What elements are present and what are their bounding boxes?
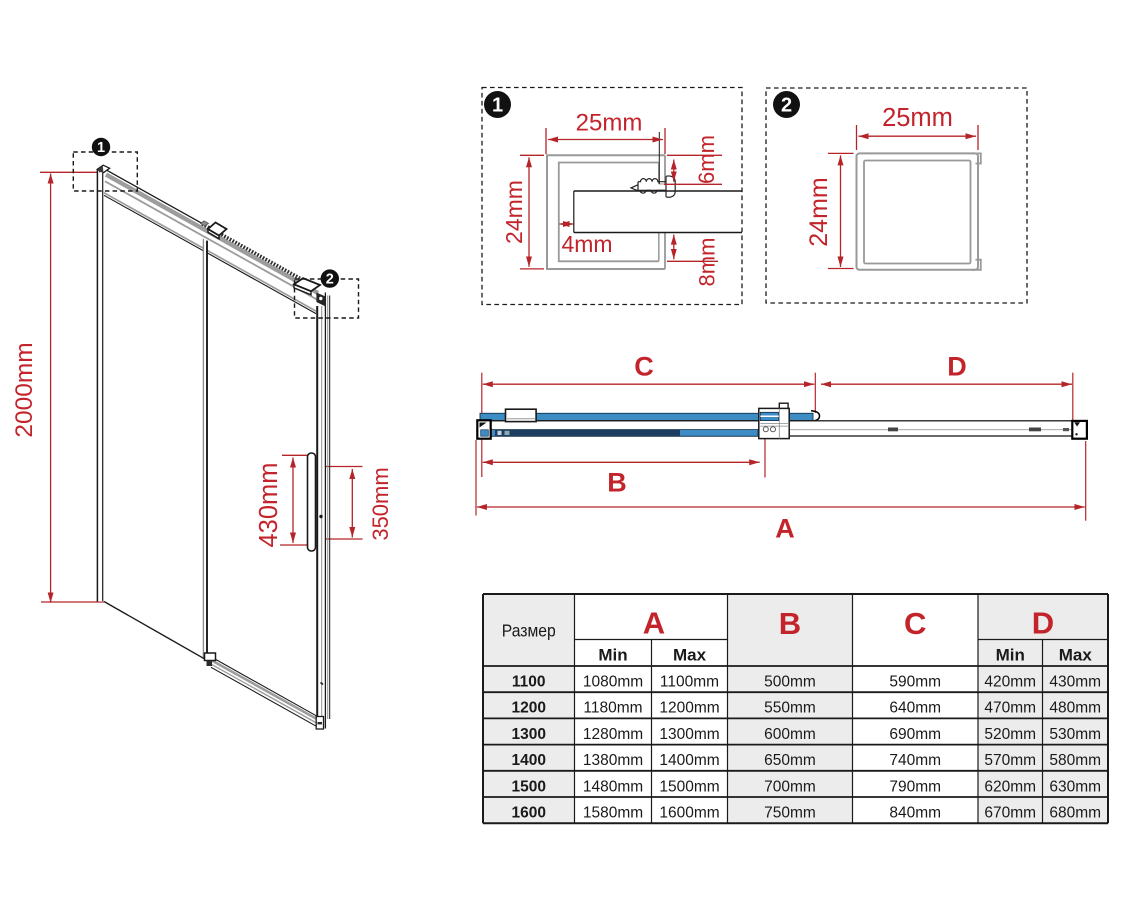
- svg-text:1380mm: 1380mm: [583, 752, 643, 769]
- svg-text:1480mm: 1480mm: [583, 778, 643, 795]
- svg-text:700mm: 700mm: [764, 778, 816, 795]
- svg-text:Max: Max: [1059, 646, 1093, 665]
- svg-text:1580mm: 1580mm: [583, 805, 643, 822]
- svg-text:1280mm: 1280mm: [583, 726, 643, 743]
- svg-text:1180mm: 1180mm: [583, 700, 642, 717]
- svg-text:750mm: 750mm: [764, 805, 816, 822]
- svg-text:1500mm: 1500mm: [659, 778, 719, 795]
- svg-text:590mm: 590mm: [889, 674, 941, 691]
- svg-text:790mm: 790mm: [889, 778, 941, 795]
- svg-text:2: 2: [326, 272, 334, 288]
- svg-text:840mm: 840mm: [889, 805, 941, 822]
- svg-text:1400mm: 1400mm: [659, 752, 719, 769]
- svg-text:1: 1: [492, 95, 503, 117]
- svg-text:A: A: [775, 514, 795, 544]
- svg-text:530mm: 530mm: [1049, 726, 1101, 743]
- svg-text:C: C: [634, 352, 654, 382]
- svg-text:8mm: 8mm: [695, 238, 720, 287]
- svg-text:570mm: 570mm: [984, 752, 1036, 769]
- svg-text:1600mm: 1600mm: [659, 805, 719, 822]
- svg-text:690mm: 690mm: [889, 726, 941, 743]
- svg-text:1300: 1300: [512, 726, 546, 743]
- svg-text:C: C: [904, 606, 926, 641]
- svg-text:480mm: 480mm: [1049, 700, 1101, 717]
- svg-text:1: 1: [97, 140, 105, 156]
- svg-text:350mm: 350mm: [368, 467, 393, 540]
- svg-text:Min: Min: [598, 646, 627, 665]
- svg-text:550mm: 550mm: [764, 700, 816, 717]
- svg-text:A: A: [643, 606, 665, 641]
- svg-text:420mm: 420mm: [984, 674, 1036, 691]
- svg-text:25mm: 25mm: [576, 110, 643, 137]
- svg-text:B: B: [779, 606, 801, 641]
- svg-text:1100mm: 1100mm: [660, 674, 719, 691]
- svg-text:1500: 1500: [512, 778, 546, 795]
- svg-text:D: D: [1032, 606, 1054, 641]
- svg-text:4mm: 4mm: [561, 231, 612, 257]
- svg-text:430mm: 430mm: [255, 462, 283, 547]
- svg-text:1400: 1400: [512, 752, 546, 769]
- svg-text:1600: 1600: [512, 805, 546, 822]
- svg-text:2: 2: [781, 95, 792, 117]
- svg-text:580mm: 580mm: [1049, 752, 1101, 769]
- svg-text:Размер: Размер: [502, 621, 556, 641]
- svg-text:25mm: 25mm: [882, 104, 953, 132]
- svg-text:500mm: 500mm: [764, 674, 816, 691]
- svg-text:6mm: 6mm: [694, 135, 719, 184]
- svg-text:740mm: 740mm: [889, 752, 941, 769]
- svg-text:D: D: [947, 352, 967, 382]
- svg-text:Max: Max: [673, 646, 707, 665]
- svg-text:430mm: 430mm: [1049, 674, 1101, 691]
- svg-text:1200mm: 1200mm: [659, 700, 719, 717]
- svg-text:24mm: 24mm: [501, 180, 527, 244]
- svg-text:2000mm: 2000mm: [11, 342, 38, 437]
- svg-text:24mm: 24mm: [805, 177, 833, 246]
- svg-text:650mm: 650mm: [764, 752, 816, 769]
- svg-text:680mm: 680mm: [1049, 805, 1101, 822]
- svg-text:600mm: 600mm: [764, 726, 816, 743]
- svg-text:1080mm: 1080mm: [583, 674, 643, 691]
- svg-text:Min: Min: [996, 646, 1025, 665]
- svg-text:470mm: 470mm: [984, 700, 1036, 717]
- svg-text:1300mm: 1300mm: [659, 726, 719, 743]
- svg-text:630mm: 630mm: [1049, 778, 1101, 795]
- svg-text:670mm: 670mm: [984, 805, 1036, 822]
- svg-text:1100: 1100: [512, 674, 546, 691]
- svg-text:520mm: 520mm: [984, 726, 1036, 743]
- svg-text:640mm: 640mm: [889, 700, 941, 717]
- svg-text:B: B: [607, 468, 627, 498]
- svg-text:1200: 1200: [512, 700, 546, 717]
- svg-text:620mm: 620mm: [984, 778, 1036, 795]
